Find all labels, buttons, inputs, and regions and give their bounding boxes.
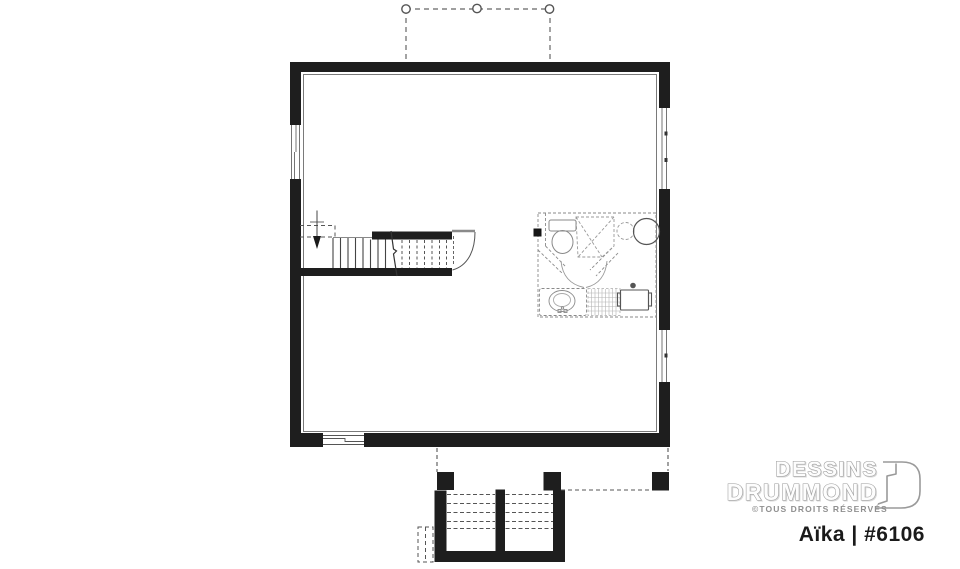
deck-outline-above xyxy=(406,9,550,61)
foundation-walls xyxy=(290,62,670,447)
window-right-upper xyxy=(659,105,672,192)
plan-title: Aïka | #6106 xyxy=(799,523,925,546)
stair-treads-solid xyxy=(333,238,386,268)
logo-text-line2: DRUMMOND xyxy=(727,479,878,505)
title-block: DESSINS DRUMMOND ©TOUS DROITS RÉSERVÉS A… xyxy=(710,448,960,569)
shower-icon xyxy=(576,217,614,257)
sink-icon xyxy=(549,291,575,313)
side-landing-dashed xyxy=(418,527,433,562)
window-left-wall xyxy=(289,122,302,182)
logo-text-line1: DESSINS xyxy=(775,458,878,481)
washer-icon xyxy=(618,283,652,310)
bathroom-proposed xyxy=(534,213,660,317)
stair-door xyxy=(452,231,475,270)
exterior-stairwell xyxy=(418,448,669,562)
toilet-icon xyxy=(549,220,576,254)
floor-plan-page: DESSINS DRUMMOND ©TOUS DROITS RÉSERVÉS A… xyxy=(0,0,960,569)
copyright-text: ©TOUS DROITS RÉSERVÉS xyxy=(752,504,888,514)
hatched-area xyxy=(588,289,620,316)
wall-block xyxy=(534,229,542,237)
drummond-d-logomark-icon xyxy=(876,462,920,508)
stair-direction-arrow xyxy=(313,236,321,249)
window-right-lower xyxy=(659,327,672,385)
water-softener-icon xyxy=(617,223,634,240)
staircase-main xyxy=(300,211,452,277)
window-bottom-wall xyxy=(320,433,367,448)
stairwell-walls xyxy=(435,490,566,563)
deck-posts-footing xyxy=(437,472,669,491)
interior-face-line xyxy=(304,75,657,432)
door-swing-arc xyxy=(453,232,476,270)
stair-treads-dashed xyxy=(402,240,447,268)
